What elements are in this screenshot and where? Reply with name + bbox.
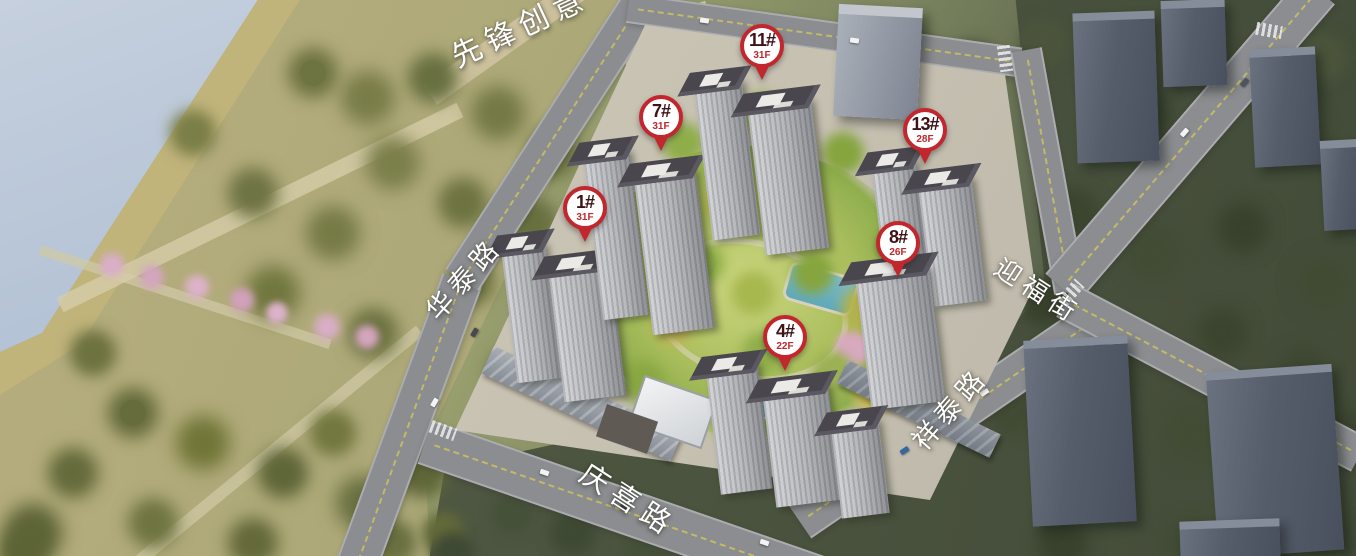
tree-cluster-south — [500, 500, 526, 526]
pin-building-number: 4# — [776, 322, 794, 340]
building-pin-8[interactable]: 8# 26F — [876, 221, 920, 277]
pin-circle: 11# 31F — [740, 24, 784, 68]
tree-cluster-park-upper — [300, 60, 326, 86]
tower-4-east — [762, 382, 842, 507]
city-tower — [1161, 0, 1228, 87]
city-tower — [1249, 46, 1321, 167]
pin-floor-count: 26F — [889, 248, 906, 258]
pin-building-number: 11# — [749, 31, 775, 49]
pin-circle: 8# 26F — [876, 221, 920, 265]
building-pin-13[interactable]: 13# 28F — [903, 108, 947, 164]
pin-circle: 7# 31F — [639, 95, 683, 139]
building-pin-4[interactable]: 4# 22F — [763, 315, 807, 371]
blossom-trees — [105, 258, 119, 272]
pin-floor-count: 28F — [916, 135, 933, 145]
city-building-low — [1179, 518, 1280, 556]
building-pin-7[interactable]: 7# 31F — [639, 95, 683, 151]
pin-circle: 13# 28F — [903, 108, 947, 152]
city-tower — [1072, 11, 1159, 164]
building-pin-1[interactable]: 1# 31F — [563, 186, 607, 242]
pin-building-number: 13# — [911, 115, 938, 133]
pin-floor-count: 22F — [776, 342, 793, 352]
city-tower — [833, 4, 923, 120]
building-pin-11[interactable]: 11# 31F — [740, 24, 784, 80]
pin-floor-count: 31F — [576, 213, 593, 223]
pin-floor-count: 31F — [753, 51, 770, 61]
pin-floor-count: 31F — [652, 122, 669, 132]
pin-building-number: 7# — [652, 102, 670, 120]
pin-building-number: 1# — [576, 193, 594, 211]
city-tower — [1023, 335, 1137, 526]
pin-circle: 1# 31F — [563, 186, 607, 230]
city-tower — [1320, 139, 1356, 231]
pin-building-number: 8# — [889, 228, 907, 246]
aerial-masterplan: 先锋创意 华泰路 迎福街 祥泰路 庆喜路 1# 31F 4# 22F 7# 31… — [0, 0, 1356, 556]
tree-cluster-park-lower — [120, 400, 146, 426]
car — [850, 37, 860, 43]
pin-circle: 4# 22F — [763, 315, 807, 359]
car — [700, 17, 710, 23]
